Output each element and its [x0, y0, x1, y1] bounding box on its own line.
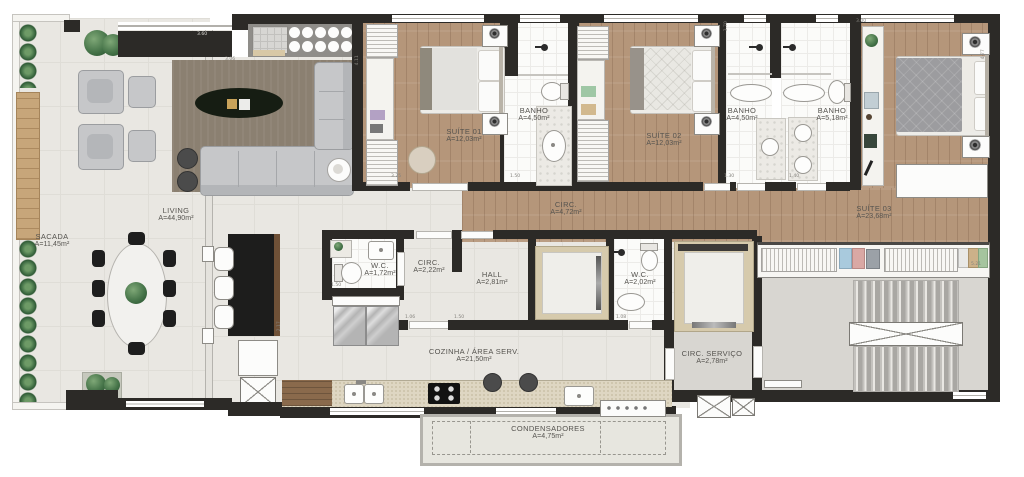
- wood-bench: [16, 92, 40, 240]
- bed-duvet: [432, 48, 477, 110]
- room-name: BANHO: [504, 106, 564, 115]
- wall: [66, 390, 118, 410]
- room-name: BANHO: [802, 106, 862, 115]
- lounge-armchair: [78, 124, 124, 170]
- room-area: A=1,72m²: [352, 270, 408, 279]
- closet-hangers: [761, 248, 837, 272]
- room-name: CIRC. SERVIÇO: [664, 349, 760, 358]
- room-label-banho3: BANHOA=5,18m²: [802, 106, 862, 124]
- dimension-label: 5.21: [971, 263, 981, 268]
- toilet-tank: [844, 83, 851, 102]
- door-leaf: [629, 321, 653, 329]
- elevator-door: [692, 322, 736, 328]
- room-label-wc2: W.C.A=2,02m²: [612, 270, 668, 288]
- lamp-icon: [969, 139, 981, 151]
- wine-rack-icon: [288, 25, 358, 56]
- laundry-counter: [332, 296, 400, 306]
- wall: [352, 14, 363, 190]
- folded-clothes: [866, 249, 880, 269]
- shower-arm: [749, 46, 757, 48]
- window: [392, 15, 484, 22]
- table-centerpiece: [125, 282, 147, 304]
- dimension-label: 1.40: [789, 175, 799, 180]
- tv-wall: [118, 31, 232, 57]
- wall: [770, 14, 781, 78]
- bed-throw: [420, 48, 432, 110]
- kitchen-sink: [364, 384, 384, 404]
- cooktop: [428, 383, 460, 404]
- shower-glass: [781, 73, 831, 75]
- shower-glass: [728, 73, 772, 75]
- plant-icon: [865, 34, 878, 47]
- stairs-railing: [849, 322, 963, 346]
- room-name: SUÍTE 02: [624, 131, 704, 140]
- room-name: CONDENSADORES: [478, 424, 618, 433]
- shower-glass: [518, 74, 568, 76]
- lamp-icon: [969, 36, 981, 48]
- room-name: CIRC.: [528, 200, 604, 209]
- toilet-tank: [560, 83, 569, 100]
- bed-sheet: [962, 58, 974, 132]
- room-area: A=2,22m²: [401, 267, 457, 276]
- room-area: A=4,75m²: [478, 433, 618, 442]
- bathtub-sink: [783, 84, 825, 102]
- dresser-desk: [896, 164, 988, 198]
- dimension-label: 3.06: [225, 58, 235, 63]
- elevator-rail: [596, 256, 601, 310]
- vent-grille: [600, 400, 666, 417]
- wall: [64, 20, 80, 32]
- dimension-label: 1.50: [331, 284, 341, 289]
- kitchen-sink: [344, 384, 364, 404]
- pillow: [478, 81, 501, 112]
- window: [330, 408, 424, 415]
- room-name: SUÍTE 03: [834, 204, 914, 213]
- decor-item: [866, 114, 872, 120]
- dining-chair: [128, 232, 145, 245]
- service-cabinet: [238, 340, 278, 376]
- room-area: A=23,68m²: [834, 213, 914, 222]
- plant-icon: [334, 242, 343, 251]
- dimension-label: 1.30: [724, 175, 734, 180]
- stairs-upper-flight: [853, 280, 959, 324]
- window-band: [118, 22, 232, 30]
- room-area: A=5,18m²: [802, 115, 862, 124]
- headboard: [499, 44, 503, 114]
- dimension-label: 1.08: [616, 316, 626, 321]
- wall: [730, 182, 736, 191]
- duct-shaft: [697, 395, 731, 418]
- dimension-label: 4.11: [356, 55, 361, 65]
- room-label-suite02: SUÍTE 02A=12,03m²: [624, 131, 704, 149]
- sliding-door-handle: [202, 246, 214, 262]
- shower-head-icon: [541, 44, 548, 51]
- door-leaf: [797, 183, 827, 191]
- bed-duvet: [896, 58, 962, 132]
- sink: [761, 138, 779, 156]
- window: [953, 392, 986, 399]
- room-name: W.C.: [612, 270, 668, 279]
- door-leaf: [416, 231, 452, 239]
- wardrobe-hangers: [366, 24, 398, 58]
- room-label-circ-servico: CIRC. SERVIÇOA=2,78m²: [664, 349, 760, 367]
- dimension-label: 2.17: [278, 321, 283, 331]
- bathtub-sink: [730, 84, 772, 102]
- plant-row-icon: [17, 24, 41, 88]
- room-name: HALL: [464, 270, 520, 279]
- stairs-lower-flight: [853, 346, 959, 392]
- room-area: A=12,03m²: [624, 140, 704, 149]
- room-name: CIRC.: [401, 258, 457, 267]
- room-name: SACADA: [14, 232, 90, 241]
- room-label-cozinha: COZINHA / ÁREA SERV.A=21,50m²: [384, 347, 564, 365]
- room-label-living: LIVINGA=44,90m²: [138, 206, 214, 224]
- balcony-frame-top: [12, 14, 70, 22]
- sink: [617, 293, 645, 311]
- bar-stool: [214, 276, 234, 300]
- door-leaf: [412, 183, 468, 191]
- bed-duvet: [644, 48, 691, 110]
- plant-row-icon: [17, 240, 41, 402]
- room-label-circ: CIRC.A=4,72m²: [528, 200, 604, 218]
- window: [604, 15, 698, 22]
- dimension-label: 1.06: [405, 316, 415, 321]
- room-area: A=2,02m²: [612, 279, 668, 288]
- chaise-sofa: [314, 62, 354, 150]
- shelf-item: [581, 86, 596, 97]
- room-label-condensadores: CONDENSADORESA=4,75m²: [478, 424, 618, 442]
- room-area: A=4,72m²: [528, 209, 604, 218]
- dining-chair: [163, 280, 176, 297]
- elevator-cabin: [542, 252, 602, 314]
- lamp-icon: [489, 116, 500, 127]
- dining-chair: [92, 310, 105, 327]
- faucet-icon: [356, 380, 366, 384]
- dining-chair: [163, 250, 176, 267]
- dimension-label: 4.77: [982, 49, 987, 59]
- shower-arm: [535, 46, 542, 48]
- room-area: A=12,03m²: [424, 136, 504, 145]
- lamp-icon: [701, 116, 712, 127]
- lamp-icon: [489, 28, 500, 39]
- wardrobe-hangers: [577, 120, 609, 182]
- counter-stool: [519, 373, 538, 392]
- shower-head-icon: [756, 44, 763, 51]
- room-area: A=21,50m²: [384, 356, 564, 365]
- picture-frame: [864, 92, 879, 109]
- dining-chair: [92, 280, 105, 297]
- door-leaf: [461, 231, 494, 239]
- room-label-suite01: SUÍTE 01A=12,03m²: [424, 127, 504, 145]
- wardrobe-hangers: [577, 26, 609, 60]
- folded-clothes: [852, 248, 865, 269]
- book-item: [864, 134, 877, 148]
- shower-head-icon: [789, 44, 796, 51]
- dimension-label: 3.60: [197, 33, 207, 38]
- door-leaf: [704, 183, 731, 191]
- dining-chair: [92, 250, 105, 267]
- room-area: A=2,78m²: [664, 358, 760, 367]
- lamp-icon: [701, 28, 712, 39]
- round-chair: [408, 146, 436, 174]
- pouf: [177, 148, 198, 169]
- room-area: A=11,45m²: [14, 241, 90, 250]
- headboard: [985, 54, 989, 136]
- door-leaf: [409, 321, 449, 329]
- window: [744, 15, 766, 22]
- room-label-circ2: CIRC.A=2,22m²: [401, 258, 457, 276]
- room-label-hall: HALLA=2,81m²: [464, 270, 520, 288]
- ottoman: [128, 130, 156, 162]
- room-name: W.C.: [352, 261, 408, 270]
- wall: [850, 14, 861, 190]
- wall: [468, 182, 703, 191]
- shower-arm: [614, 251, 620, 253]
- dining-chair: [163, 310, 176, 327]
- elevator-cabin: [684, 252, 744, 324]
- headboard: [711, 44, 715, 114]
- dimension-label: 3.25: [391, 175, 401, 180]
- sink: [368, 241, 394, 260]
- room-name: SUÍTE 01: [424, 127, 504, 136]
- room-name: LIVING: [138, 206, 214, 215]
- shower-arm: [783, 46, 790, 48]
- stairs-threshold: [764, 380, 802, 388]
- window: [520, 15, 560, 22]
- elevator-lintel: [678, 244, 748, 251]
- room-label-wc1: W.C.A=1,72m²: [352, 261, 408, 279]
- wall: [765, 182, 796, 191]
- sink: [794, 124, 812, 142]
- pillow: [478, 50, 501, 81]
- faucet-icon: [551, 143, 555, 147]
- sink: [794, 156, 812, 174]
- closet-hangers: [884, 248, 958, 272]
- dining-chair: [128, 342, 145, 355]
- wall: [448, 320, 628, 330]
- bar-stool: [214, 247, 234, 271]
- condenser-divider: [470, 421, 472, 453]
- door-opening: [232, 30, 248, 57]
- shelf-item: [581, 104, 596, 115]
- lounge-armchair: [78, 70, 124, 114]
- dimension-label: 3.00: [856, 20, 866, 25]
- service-sink: [564, 386, 594, 406]
- room-name: COZINHA / ÁREA SERV.: [384, 347, 564, 356]
- room-label-banho2: BANHOA=4,50m²: [712, 106, 772, 124]
- room-name: BANHO: [712, 106, 772, 115]
- room-area: A=44,90m²: [138, 215, 214, 224]
- dryer-machine: [366, 306, 399, 346]
- window: [860, 15, 954, 22]
- kitchen-island: [228, 234, 280, 336]
- folded-clothes: [839, 248, 852, 269]
- coffee-table-tray: [227, 99, 237, 109]
- ottoman: [128, 76, 156, 108]
- bed-throw: [630, 48, 644, 110]
- dimension-label: 3.70: [725, 21, 730, 31]
- room-area: A=4,50m²: [712, 115, 772, 124]
- toilet: [641, 250, 658, 271]
- kitchen-wood-cabinet: [282, 380, 332, 406]
- washer-machine: [333, 306, 366, 346]
- room-label-banho1: BANHOA=4,50m²: [504, 106, 564, 124]
- duct-shaft: [732, 398, 755, 416]
- wall: [826, 182, 850, 191]
- door-leaf: [737, 183, 766, 191]
- side-table-top: [333, 164, 343, 174]
- wall: [228, 402, 284, 416]
- pouf: [177, 171, 198, 192]
- dimension-label: 1.50: [510, 175, 520, 180]
- window: [126, 401, 204, 407]
- sliding-door-handle: [202, 328, 214, 344]
- cabinet-shelf: [253, 50, 285, 56]
- dimension-label: 1.50: [454, 316, 464, 321]
- room-label-suite03: SUÍTE 03A=23,68m²: [834, 204, 914, 222]
- floor-plan: SACADAA=11,45m² LIVINGA=44,90m² SUÍTE 01…: [0, 0, 1024, 477]
- shelf-item: [370, 124, 383, 133]
- room-label-sacada: SACADAA=11,45m²: [14, 232, 90, 250]
- wall: [988, 14, 1000, 402]
- coffee-table-book: [239, 99, 250, 110]
- shelf-item: [370, 110, 385, 120]
- room-area: A=4,50m²: [504, 115, 564, 124]
- counter-stool: [483, 373, 502, 392]
- bar-stool: [214, 305, 234, 329]
- room-area: A=2,81m²: [464, 279, 520, 288]
- window: [816, 15, 838, 22]
